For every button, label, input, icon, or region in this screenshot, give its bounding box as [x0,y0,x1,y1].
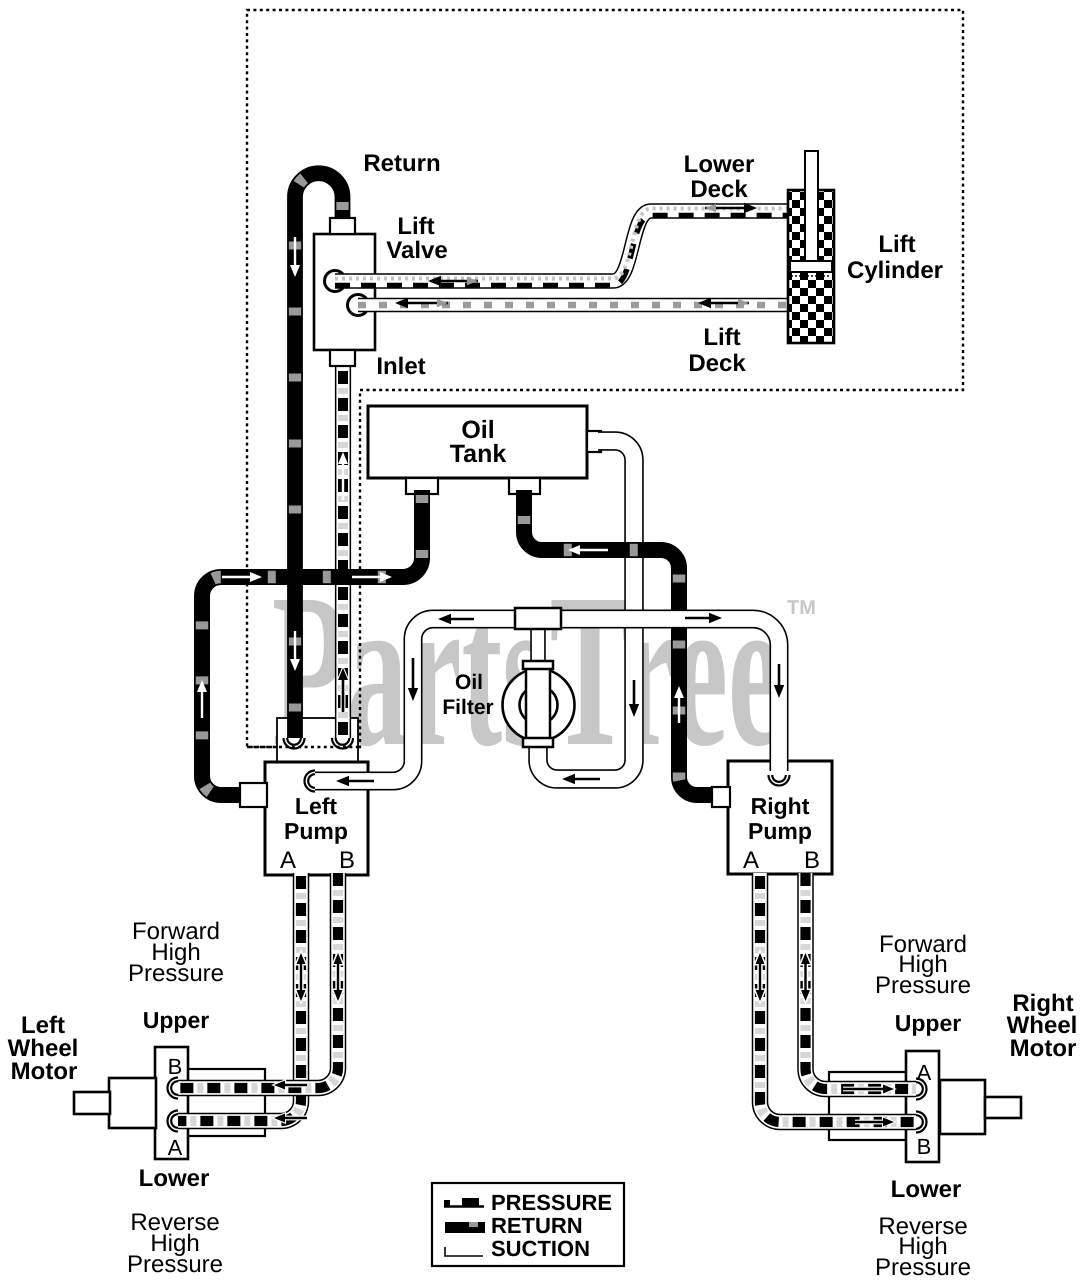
svg-text:Valve: Valve [386,237,447,264]
svg-text:Motor: Motor [11,1058,78,1085]
svg-text:Left: Left [295,793,338,819]
svg-text:A: A [280,847,296,874]
svg-text:Pressure: Pressure [128,960,224,987]
svg-text:Pump: Pump [284,818,348,844]
svg-text:Lift: Lift [703,324,740,351]
svg-text:PRESSURE: PRESSURE [491,1190,612,1215]
svg-text:Cylinder: Cylinder [847,257,943,284]
svg-text:A: A [168,1135,183,1160]
svg-text:Motor: Motor [1010,1035,1077,1062]
svg-text:Inlet: Inlet [376,353,425,380]
svg-text:Deck: Deck [690,176,748,203]
svg-text:Lift: Lift [878,231,915,258]
svg-text:B: B [168,1054,183,1079]
svg-text:Lower: Lower [139,1165,210,1192]
svg-text:Tank: Tank [450,440,507,468]
svg-text:Upper: Upper [143,1007,210,1033]
svg-text:Upper: Upper [895,1010,962,1036]
svg-text:Deck: Deck [688,350,746,377]
svg-text:Pump: Pump [748,818,812,844]
svg-text:B: B [917,1134,932,1159]
svg-text:TM: TM [787,597,816,619]
svg-text:Pressure: Pressure [875,1254,971,1280]
svg-text:Filter: Filter [442,696,493,719]
svg-text:A: A [743,847,759,874]
svg-text:RETURN: RETURN [491,1213,583,1238]
svg-text:Lower: Lower [684,151,755,178]
svg-text:B: B [804,847,820,874]
svg-text:Oil: Oil [455,671,483,694]
svg-text:Right: Right [751,793,810,819]
svg-text:Lower: Lower [891,1176,962,1203]
svg-text:Pressure: Pressure [127,1251,223,1278]
svg-text:SUCTION: SUCTION [491,1236,590,1261]
svg-text:A: A [917,1060,932,1085]
svg-text:Pressure: Pressure [875,972,971,999]
svg-text:Lift: Lift [397,213,434,240]
svg-text:Return: Return [363,150,440,177]
svg-text:B: B [339,847,355,874]
